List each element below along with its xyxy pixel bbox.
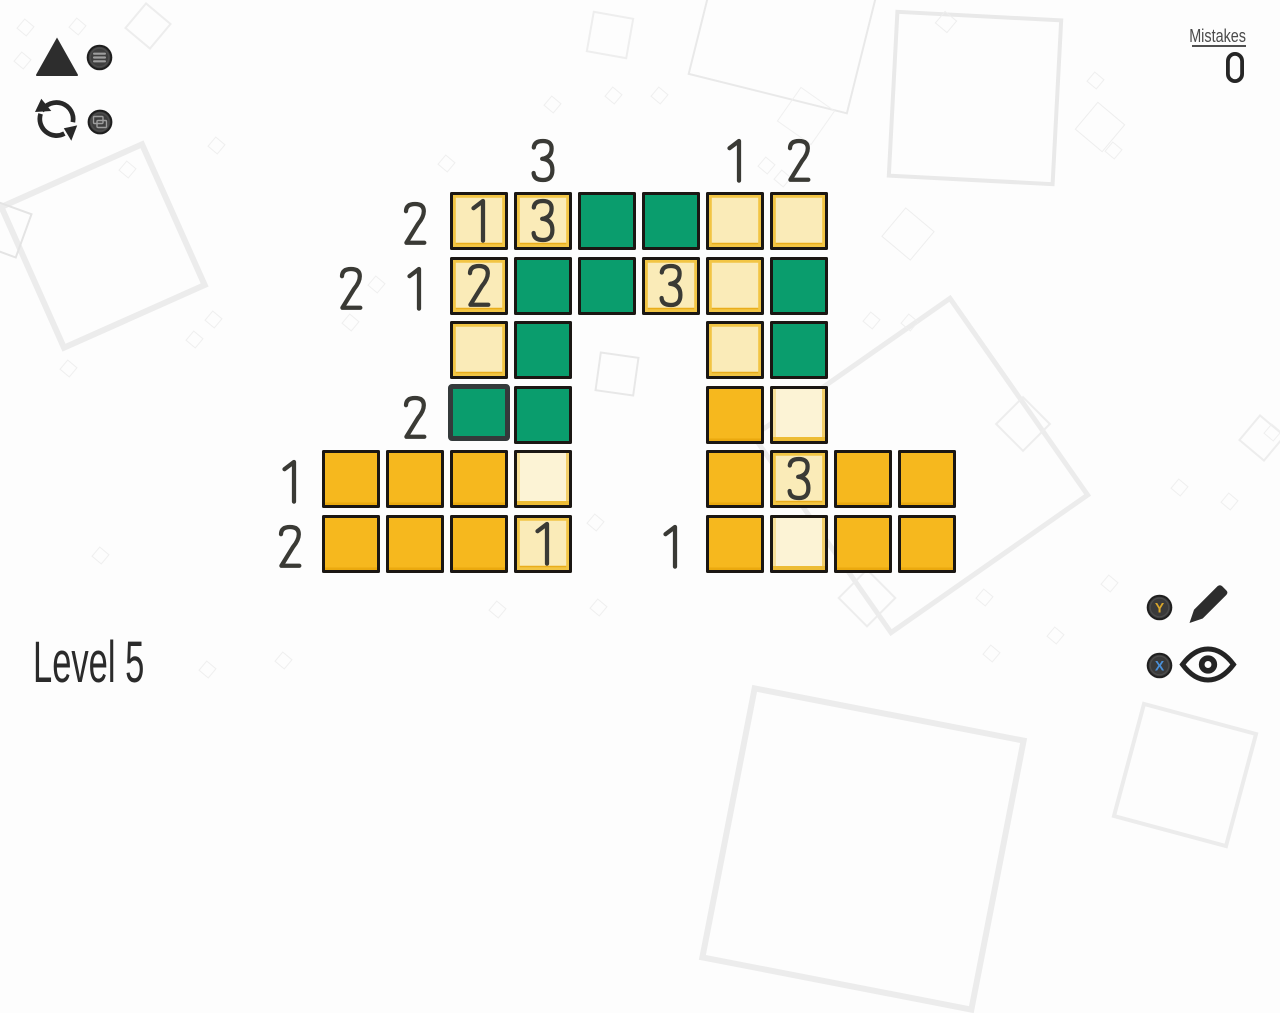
- svg-text:Y: Y: [1155, 600, 1165, 616]
- svg-text:X: X: [1155, 658, 1165, 674]
